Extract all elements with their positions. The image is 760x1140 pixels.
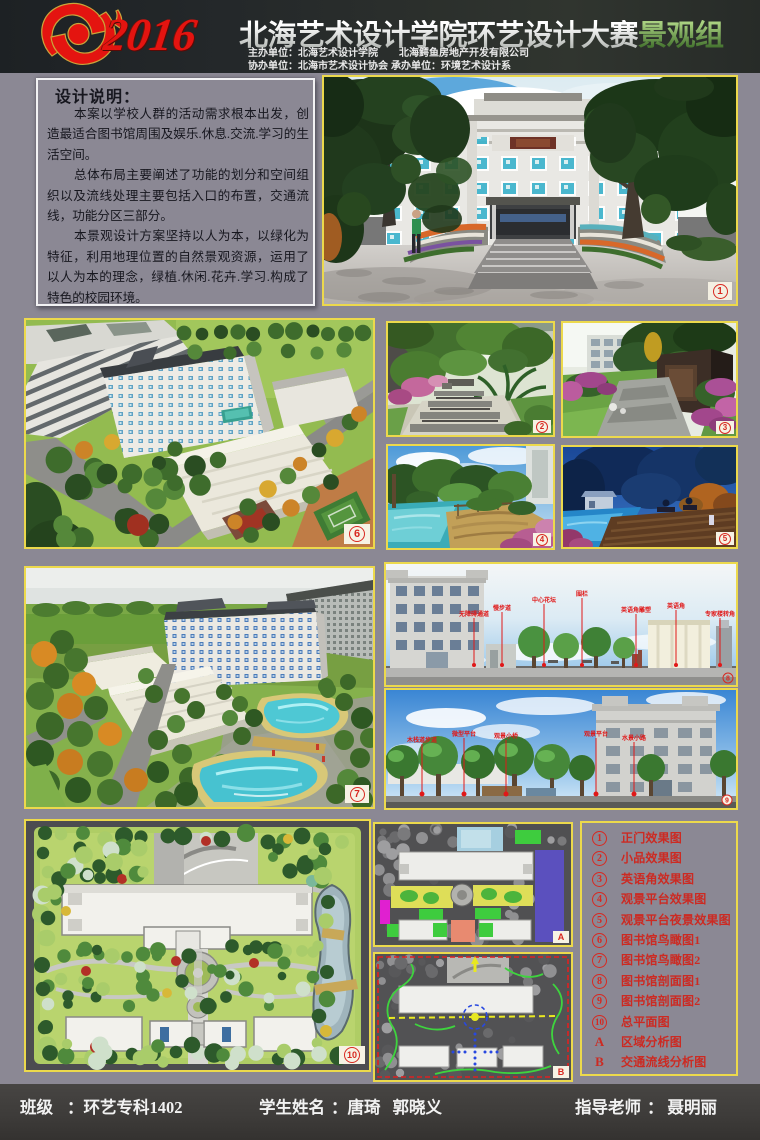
svg-text:中心花坛: 中心花坛 bbox=[532, 596, 556, 604]
svg-text:木栈道步道: 木栈道步道 bbox=[406, 736, 437, 744]
svg-text:观景小桥: 观景小桥 bbox=[494, 732, 519, 740]
svg-text:慢步道: 慢步道 bbox=[493, 604, 511, 612]
svg-text:8: 8 bbox=[726, 676, 730, 683]
svg-text:英语角雕塑: 英语角雕塑 bbox=[620, 606, 651, 614]
svg-text:观景平台: 观景平台 bbox=[584, 730, 608, 738]
svg-text:无障碍通道: 无障碍通道 bbox=[458, 610, 489, 618]
svg-text:围栏: 围栏 bbox=[576, 590, 588, 598]
svg-text:专家楼转角: 专家楼转角 bbox=[705, 610, 735, 618]
svg-text:微型平台: 微型平台 bbox=[451, 730, 476, 738]
svg-text:水景小路: 水景小路 bbox=[622, 734, 647, 742]
svg-text:9: 9 bbox=[725, 798, 729, 805]
svg-text:英语角: 英语角 bbox=[666, 602, 685, 610]
